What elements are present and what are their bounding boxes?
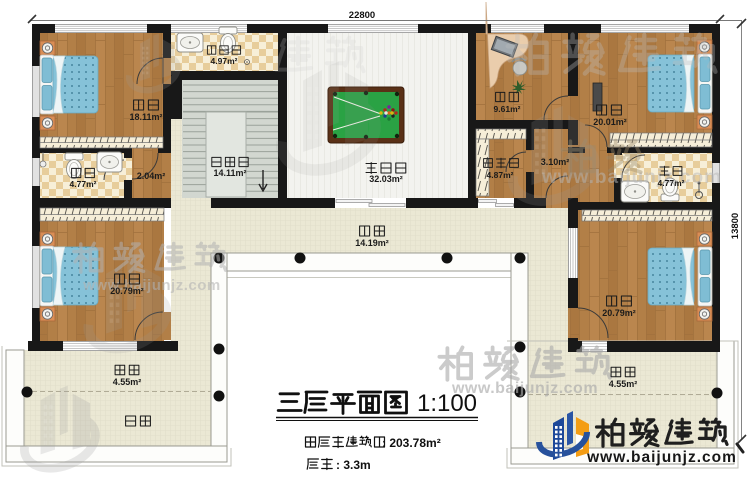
svg-text:20.79m²: 20.79m² <box>110 286 144 296</box>
svg-text:www.baijunjz.com: www.baijunjz.com <box>586 449 737 466</box>
svg-text:: 203.78m²: : 203.78m² <box>382 436 441 450</box>
svg-text:4.87m²: 4.87m² <box>487 170 514 180</box>
svg-text:4.77m²: 4.77m² <box>658 178 685 188</box>
svg-text:2.04m²: 2.04m² <box>137 171 166 181</box>
svg-text:1:100: 1:100 <box>417 390 477 417</box>
svg-text:4.77m²: 4.77m² <box>70 179 97 189</box>
svg-text:4.55m²: 4.55m² <box>609 379 638 389</box>
svg-text:4.97m²: 4.97m² <box>211 56 238 66</box>
svg-text:9.61m²: 9.61m² <box>494 104 521 114</box>
svg-text:13800: 13800 <box>730 213 741 239</box>
svg-text:3.10m²: 3.10m² <box>541 157 570 167</box>
svg-text:: 3.3m: : 3.3m <box>336 458 371 472</box>
svg-text:20.79m²: 20.79m² <box>602 308 636 318</box>
svg-text:4.55m²: 4.55m² <box>113 377 142 387</box>
svg-text:22800: 22800 <box>349 10 375 21</box>
svg-text:32.03m²: 32.03m² <box>369 174 403 184</box>
svg-text:20.01m²: 20.01m² <box>593 117 627 127</box>
svg-text:18.11m²: 18.11m² <box>129 112 162 122</box>
svg-text:14.19m²: 14.19m² <box>355 238 389 248</box>
svg-text:14.11m²: 14.11m² <box>213 168 246 178</box>
